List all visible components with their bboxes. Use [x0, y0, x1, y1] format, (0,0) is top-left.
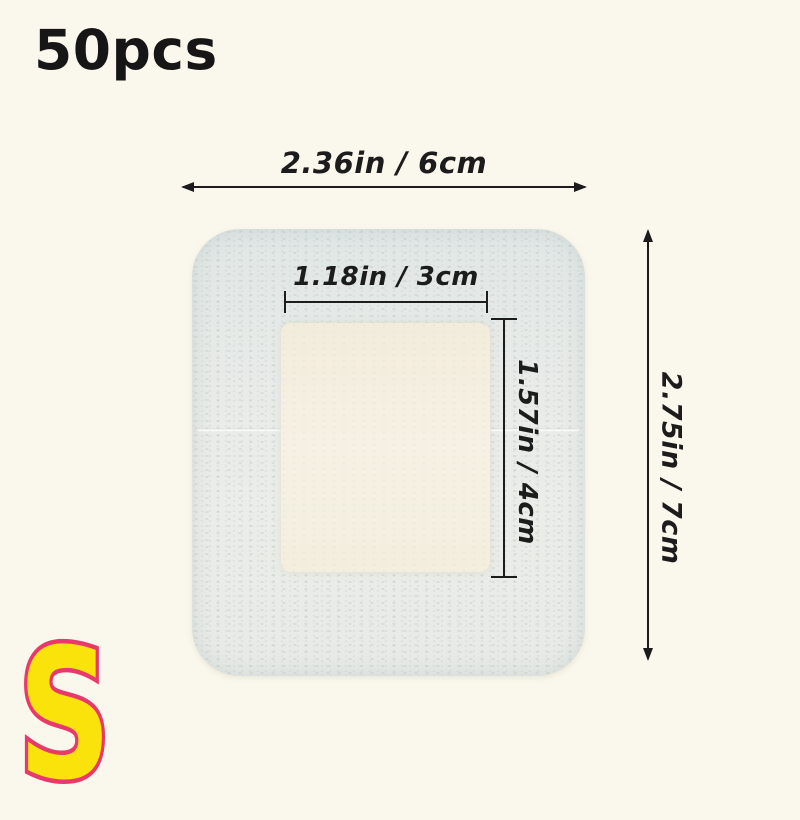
- arrow-right-icon: [574, 182, 587, 192]
- absorbent-pad: [281, 323, 490, 572]
- outer-width-label: 2.36in / 6cm: [183, 146, 585, 180]
- outer-height-label: 2.75in / 7cm: [656, 372, 687, 565]
- arrow-left-icon: [181, 182, 194, 192]
- pad-height-line: [503, 318, 505, 578]
- tick-icon: [491, 576, 517, 578]
- tick-icon: [486, 291, 488, 313]
- pad-width-label: 1.18in / 3cm: [284, 262, 488, 292]
- size-badge: S: [18, 626, 111, 806]
- outer-width-arrow: [183, 186, 585, 188]
- tick-icon: [491, 318, 517, 320]
- arrow-down-icon: [643, 648, 653, 661]
- quantity-label: 50pcs: [34, 20, 218, 81]
- tick-icon: [284, 291, 286, 313]
- product-spec-image: 50pcs 2.36in / 6cm 1.18in / 3cm 1.57in /…: [0, 0, 800, 800]
- pad-height-label: 1.57in / 4cm: [512, 359, 542, 545]
- outer-height-arrow: [647, 231, 649, 659]
- pad-width-line: [284, 301, 488, 303]
- arrow-up-icon: [643, 229, 653, 242]
